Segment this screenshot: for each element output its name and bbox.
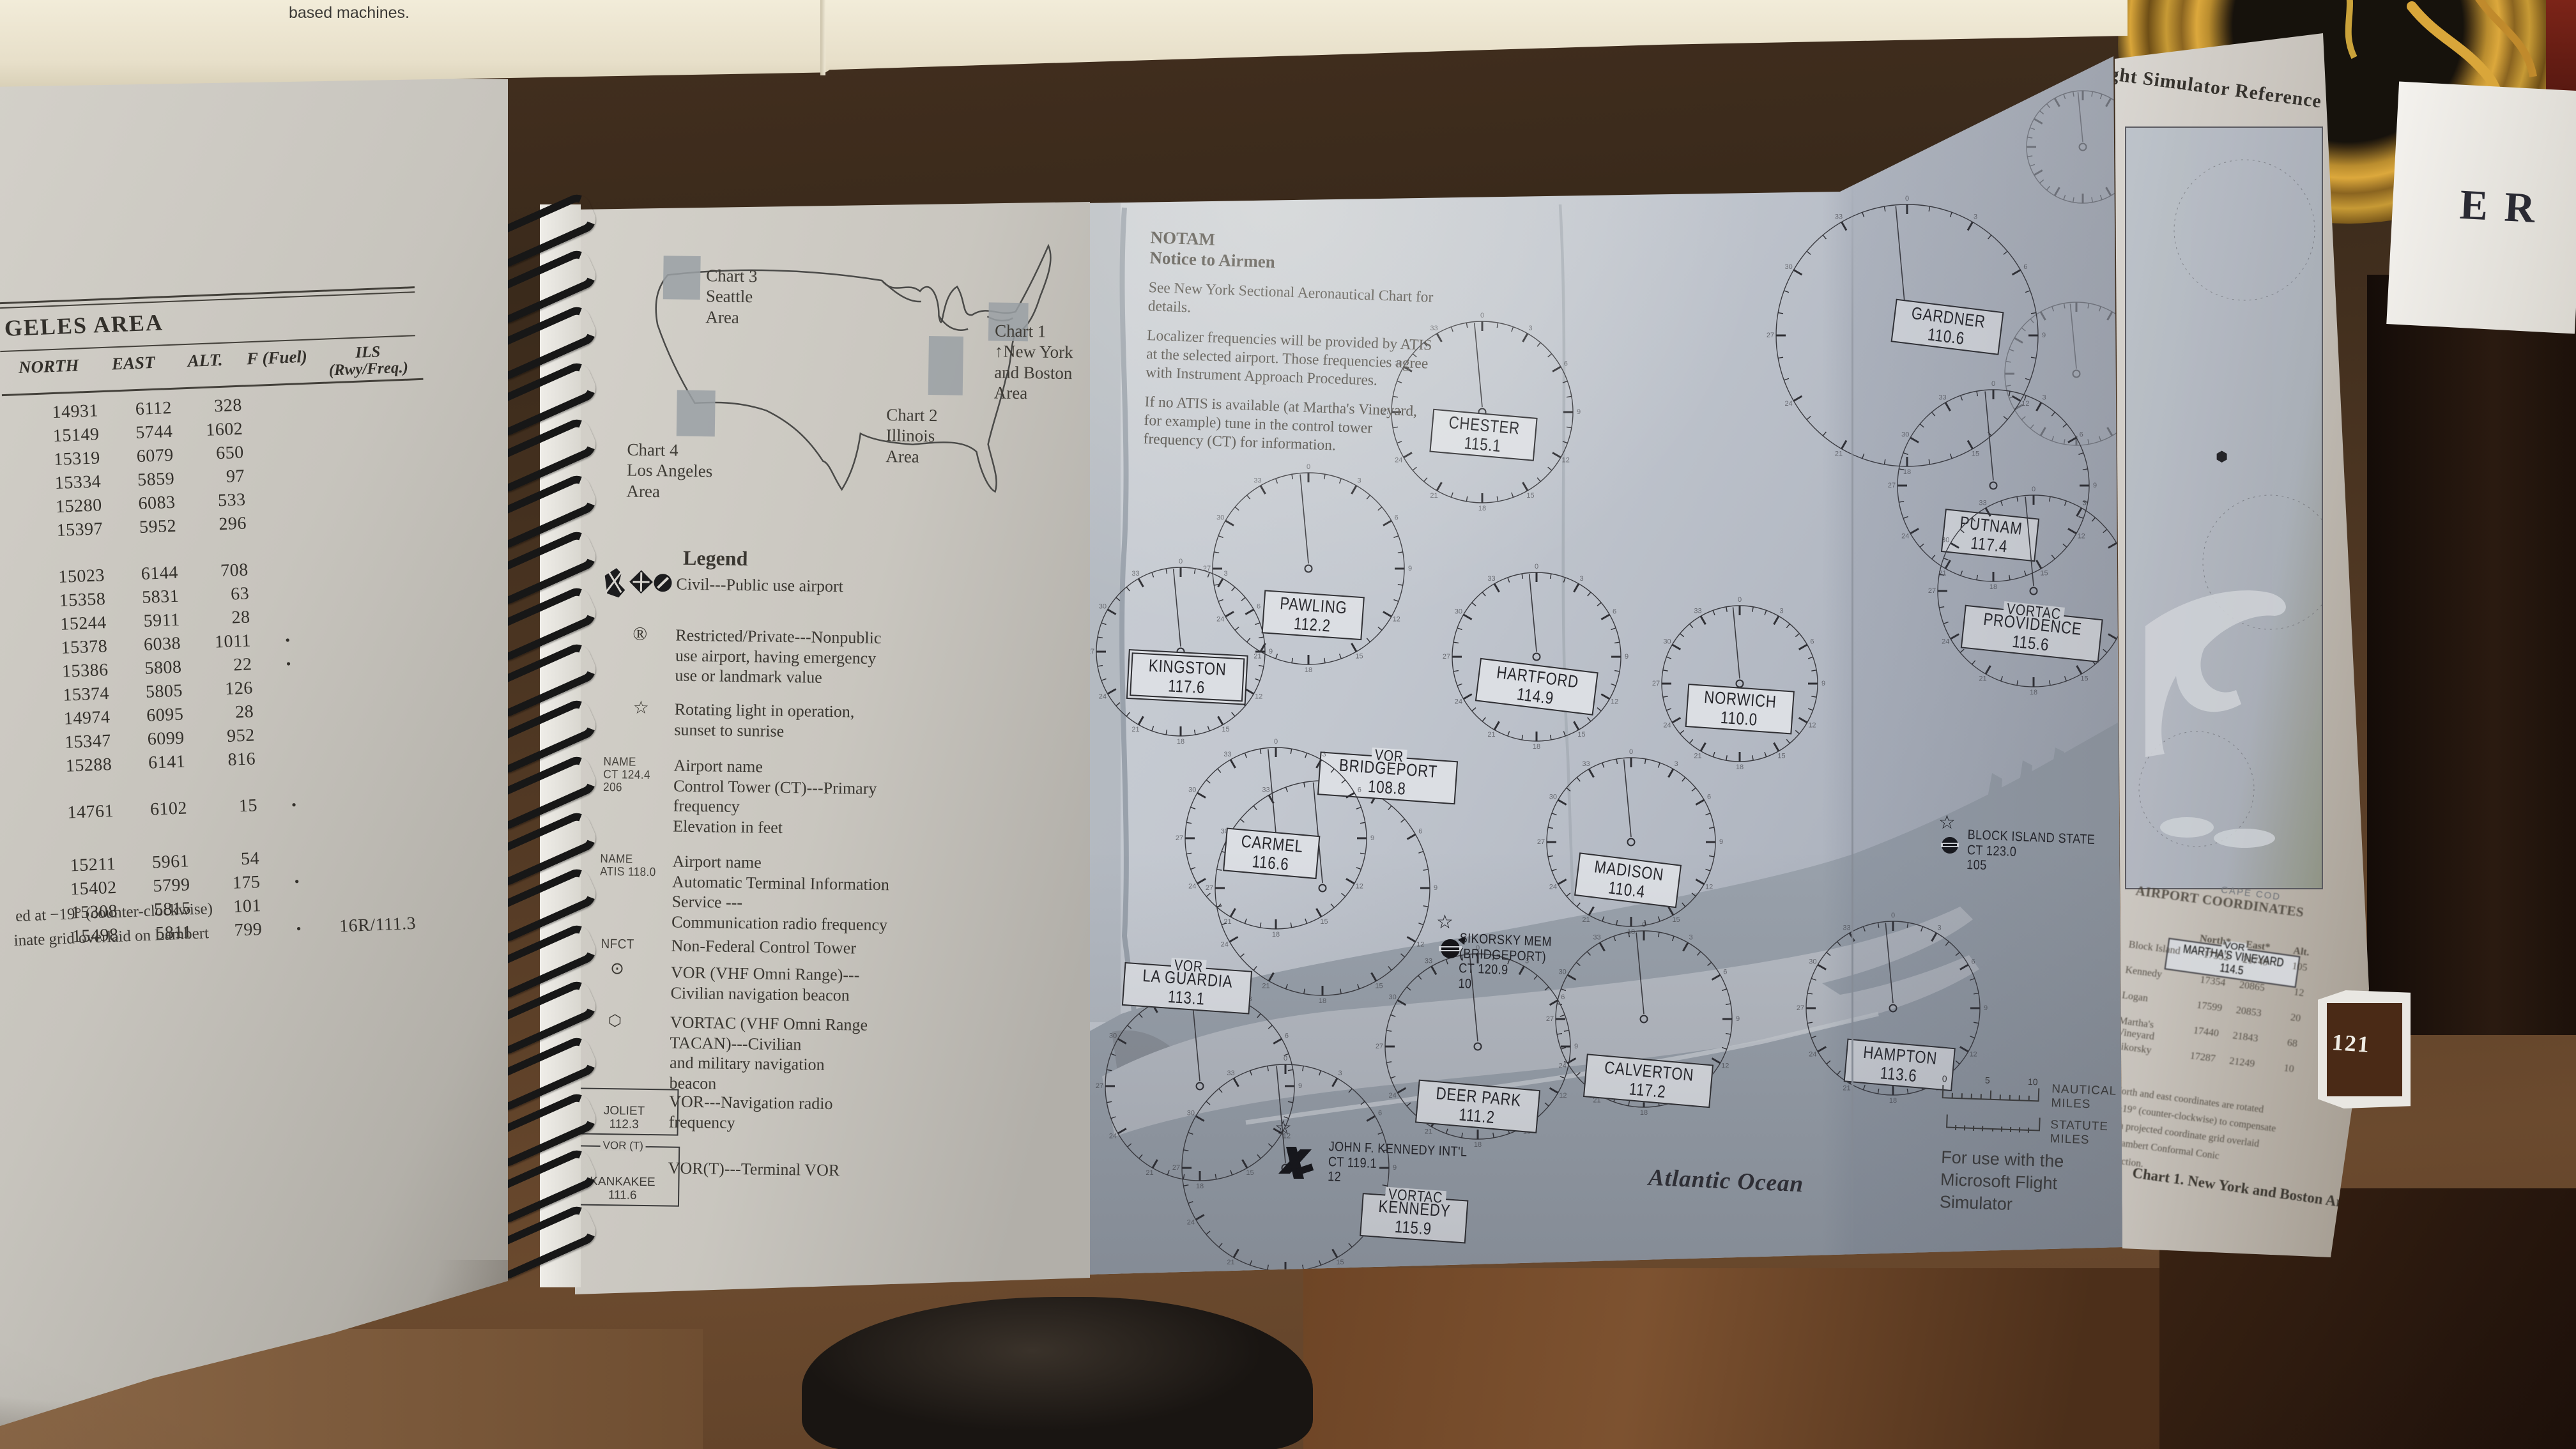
alt-value: 1011: [180, 631, 251, 654]
header-ils: ILS(Rwy/Freq.): [313, 342, 423, 380]
fuel-flag: [253, 691, 326, 693]
fuel-flag: [249, 596, 323, 599]
coordinates-rows: Block Island1735221749105Kennedy17354208…: [2113, 939, 2326, 1092]
north-value: 14974: [14, 707, 111, 732]
flap-coordinate-value: 105: [2267, 958, 2308, 974]
paper-crease: [820, 0, 825, 75]
header-east: EAST: [96, 352, 171, 388]
ils-value: [335, 904, 447, 908]
north-value: 15211: [20, 854, 116, 878]
legend-nfct-text: Non-Federal Control Tower: [671, 936, 894, 960]
east-value: 5805: [109, 681, 183, 704]
ils-value: [323, 592, 435, 596]
north-value: 14761: [18, 801, 114, 825]
ils-value: 16R/111.3: [335, 912, 448, 937]
fuel-flag: [255, 738, 328, 740]
north-value: 15288: [16, 755, 112, 779]
chart-1-page[interactable]: 03691215182124273033GARDNER 110.60369121…: [1086, 54, 2122, 1276]
coord-col-east: East*: [2230, 937, 2271, 954]
east-value: 5831: [105, 586, 180, 609]
civil-airport-icons: [599, 564, 673, 602]
ils-value: [333, 857, 445, 861]
chart3-label: Chart 3 Seattle Area: [705, 265, 758, 328]
ils-value: [318, 474, 431, 479]
fuel-flag: [259, 861, 333, 864]
ils-value: [324, 615, 436, 620]
fuel-flag: [261, 908, 335, 911]
flap-coordinate-value: 21749: [2228, 953, 2269, 969]
chart2-label: Chart 2 Illinois Area: [885, 404, 938, 467]
coordinate-group: 14761610215•: [18, 788, 466, 829]
north-value: 15149: [3, 424, 100, 448]
name-atis-sample: NAME ATIS 118.0: [600, 853, 656, 879]
ils-value: [319, 498, 432, 502]
cape-cod-map-shape: ⬢: [2126, 128, 2322, 888]
ils-value: [325, 639, 437, 643]
header-fuel: F (Fuel): [240, 346, 314, 383]
ils-value: [318, 450, 430, 455]
kankakee-box-tab: VOR (T): [600, 1140, 646, 1151]
alt-value: 22: [181, 654, 252, 677]
north-value: 15334: [5, 471, 102, 496]
fuel-flag: [256, 762, 329, 764]
fuel-flag: [244, 455, 318, 457]
joliet-box-text: JOLIET 112.3: [604, 1104, 645, 1131]
coordinates-table-page[interactable]: GELES AREA NORTH EAST ALT. F (Fuel) ILS(…: [0, 72, 508, 1432]
flap-chart-area: ⬢ CAPE COD VOR MARTHA'S VINEYARD 114.5: [2125, 126, 2323, 889]
white-book-spine: ER: [2386, 82, 2576, 334]
dark-shoe-shadow: [802, 1297, 1313, 1449]
east-value: 5744: [99, 422, 173, 445]
east-value: 6083: [102, 493, 176, 516]
top-text-fragment: based machines.: [289, 4, 410, 22]
svg-text:⬢: ⬢: [2216, 448, 2228, 464]
east-value: 6079: [100, 445, 174, 468]
alt-value: 54: [189, 848, 260, 871]
legend-vortac-text: VORTAC (VHF Omni Range TACAN)---Civilian…: [669, 1012, 894, 1096]
north-value: 15280: [6, 495, 102, 519]
chart4-region-square: [677, 390, 716, 437]
legend-rotating-light-text: Rotating light in operation, sunset to s…: [674, 700, 898, 743]
chart4-label: Chart 4 Los Angeles Area: [626, 439, 713, 502]
alt-value: 296: [176, 514, 247, 537]
alt-value: 1602: [172, 419, 243, 442]
north-value: 15402: [20, 878, 117, 902]
east-value: 5808: [108, 657, 182, 680]
vor-beacon-icon: ⊙: [610, 959, 624, 978]
leather-chair-edge: [1303, 1268, 2262, 1449]
alt-value: 15: [187, 795, 257, 818]
page-tab[interactable]: 121: [2318, 990, 2411, 1108]
fuel-flag: [249, 572, 322, 575]
fuel-flag: [254, 714, 328, 717]
page-number: 121: [2331, 1029, 2372, 1058]
fuel-flag: [243, 431, 317, 434]
north-value: 15386: [12, 660, 109, 684]
svg-text:18: 18: [1282, 1273, 1289, 1281]
ils-value: [328, 733, 441, 738]
legend-terminal-vor-text: VOR(T)---Terminal VOR: [668, 1158, 892, 1181]
east-value: 6095: [110, 705, 184, 728]
fuel-flag: •: [260, 872, 334, 891]
kankakee-box-text: KANKAKEE 111.6: [590, 1175, 655, 1202]
north-value: 15319: [4, 448, 100, 472]
vortac-beacon-icon: ⬡: [608, 1011, 622, 1030]
east-value: 6038: [107, 634, 181, 657]
ils-value: [326, 663, 438, 667]
spine-letters: ER: [2458, 181, 2552, 234]
chart3-region-square: [663, 256, 701, 300]
table-row: 14761610215•: [18, 788, 466, 829]
coordinate-group: 1493161123281514957441602153196079650153…: [2, 387, 454, 546]
ils-value: [334, 880, 447, 885]
fuel-flag: [245, 479, 318, 481]
ils-value: [322, 568, 434, 572]
airport-coordinates-block: AIRPORT COORDINATES North* East* Alt. Bl…: [2099, 883, 2333, 1193]
page-lighting-shade: [1086, 54, 2122, 1276]
legend-civil-text: Civil---Public use airport: [676, 574, 900, 598]
fold-crease: [1851, 169, 1853, 1275]
restricted-icon: ®: [632, 624, 647, 645]
alt-value: 816: [185, 749, 256, 772]
header-alt: ALT.: [170, 349, 241, 386]
north-value: 15358: [10, 589, 106, 613]
legend-atis-text: Airport name Automatic Terminal Informat…: [671, 852, 896, 936]
fuel-flag: [250, 620, 324, 622]
alt-value: 533: [175, 490, 246, 513]
alt-value: 28: [183, 701, 254, 724]
ils-value: [316, 427, 429, 431]
fuel-flag: •: [251, 631, 325, 650]
chart2-region-square: [928, 336, 963, 395]
flap-airport-name: Block Island: [2128, 939, 2191, 958]
legend-vor-frequency-text: VOR---Navigation radio frequency: [669, 1091, 893, 1135]
alt-value: 708: [178, 560, 249, 583]
coordinate-group: 1502361447081535858316315244591128153786…: [8, 552, 463, 782]
north-value: 15397: [7, 519, 103, 543]
alt-value: 28: [180, 607, 250, 630]
legend-control-tower-text: Airport name Control Tower (CT)---Primar…: [673, 756, 898, 840]
fuel-flag: •: [252, 654, 326, 673]
fuel-flag: •: [262, 919, 336, 939]
alt-value: 328: [171, 395, 242, 418]
north-value: 14931: [2, 401, 98, 425]
ils-value: [316, 404, 428, 408]
rotating-light-icon: ☆: [633, 697, 650, 719]
north-value: 15374: [13, 684, 109, 708]
header-north: NORTH: [1, 355, 98, 392]
coord-col-alt: Alt.: [2269, 942, 2310, 959]
alt-value: 97: [174, 466, 245, 489]
legend-title: Legend: [683, 546, 748, 571]
east-value: 6102: [113, 798, 187, 821]
coord-col-north: North*: [2191, 932, 2232, 949]
fuel-flag: [242, 408, 316, 410]
ils-value: [327, 710, 440, 714]
east-value: 6144: [104, 563, 178, 586]
table-header-row: NORTH EAST ALT. F (Fuel) ILS(Rwy/Freq.): [1, 342, 424, 392]
fuel-flag: [247, 526, 320, 528]
north-value: 15347: [15, 731, 111, 755]
table-title-fragment: GELES AREA: [4, 309, 164, 342]
north-value: 15023: [8, 565, 105, 590]
east-value: 5961: [116, 851, 190, 874]
nfct-sample: NFCT: [601, 937, 634, 952]
legend-page[interactable]: Chart 3 Seattle Area Chart 2 Illinois Ar…: [575, 192, 1090, 1300]
east-value: 5799: [116, 875, 190, 898]
alt-value: 126: [182, 678, 253, 701]
name-ct-sample: NAME CT 124.4 206: [603, 756, 650, 795]
legend-restricted-text: Restricted/Private---Nonpublic use airpo…: [675, 625, 899, 689]
east-value: 6141: [112, 752, 186, 775]
dark-background-column: [2367, 275, 2576, 1035]
east-value: 5911: [106, 610, 180, 633]
ils-value: [326, 686, 439, 691]
ils-value: [331, 804, 443, 808]
chart1-label: Chart 1 ↑New York and Boston Area: [994, 320, 1074, 404]
north-value: 15378: [11, 636, 108, 661]
photo-of-open-reference-book: A ER Flight Simulator Reference ⬢ CAPE C…: [0, 0, 2576, 1449]
north-value: 15244: [10, 613, 107, 637]
flap-coordinate-value: 17352: [2189, 947, 2230, 963]
east-value: 6099: [111, 728, 185, 751]
east-value: 5859: [101, 469, 175, 492]
fuel-flag: •: [257, 795, 331, 815]
flap-header-title: Flight Simulator Reference: [2084, 60, 2359, 118]
alt-value: 952: [184, 725, 255, 748]
fuel-flag: [246, 502, 319, 505]
alt-value: 650: [173, 443, 244, 466]
east-value: 5952: [102, 516, 176, 539]
legend-vor-text: VOR (VHF Omni Range)--- Civilian navigat…: [670, 963, 894, 1006]
coordinates-table-body: 1493161123281514957441602153196079650153…: [2, 387, 471, 975]
ils-value: [329, 757, 441, 762]
alt-value: 63: [179, 583, 250, 606]
ils-value: [320, 521, 433, 526]
alt-value: 175: [190, 872, 261, 895]
east-value: 6112: [98, 398, 172, 421]
